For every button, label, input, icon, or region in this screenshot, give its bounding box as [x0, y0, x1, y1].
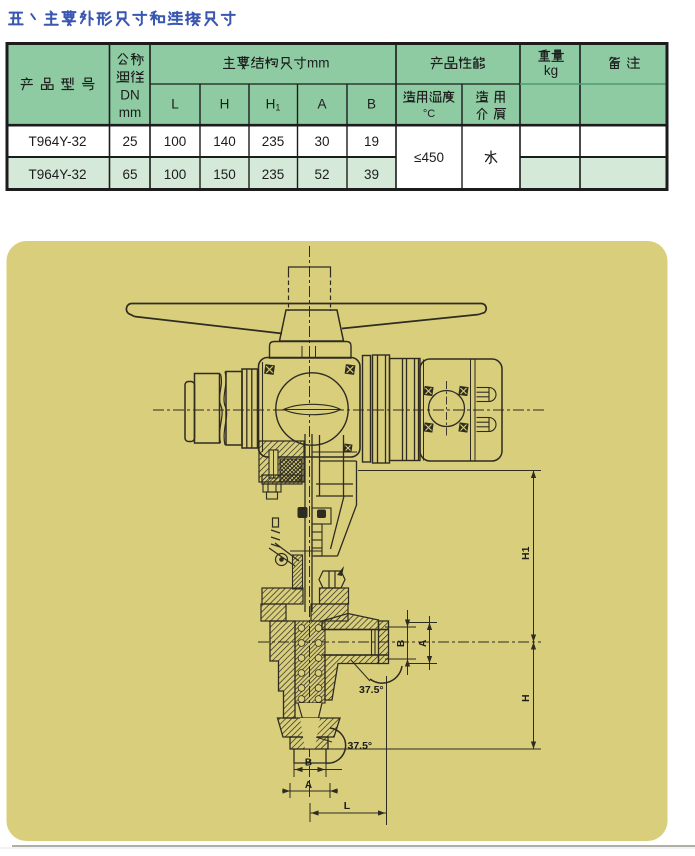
svg-text:DN: DN — [120, 88, 140, 103]
svg-text:A: A — [418, 640, 429, 647]
svg-text:mm: mm — [119, 105, 142, 120]
svg-text:≤450: ≤450 — [414, 150, 444, 165]
svg-text:T964Y-32: T964Y-32 — [28, 167, 86, 182]
svg-text:140: 140 — [213, 134, 236, 149]
svg-text:100: 100 — [164, 134, 187, 149]
svg-text:B: B — [305, 758, 312, 769]
svg-text:235: 235 — [262, 134, 285, 149]
svg-text:°C: °C — [423, 108, 435, 120]
svg-text:H1: H1 — [520, 546, 532, 560]
svg-text:30: 30 — [314, 134, 329, 149]
svg-text:37.5°: 37.5° — [359, 684, 384, 696]
svg-text:100: 100 — [164, 167, 187, 182]
svg-text:L: L — [171, 97, 179, 112]
svg-text:52: 52 — [314, 167, 329, 182]
svg-text:39: 39 — [364, 167, 379, 182]
svg-text:235: 235 — [262, 167, 285, 182]
svg-text:150: 150 — [213, 167, 236, 182]
svg-text:H: H — [220, 97, 230, 112]
svg-text:H: H — [520, 694, 532, 702]
svg-text:mm: mm — [307, 56, 330, 71]
svg-text:B: B — [367, 97, 376, 112]
svg-text:25: 25 — [122, 134, 137, 149]
svg-text:T964Y-32: T964Y-32 — [28, 134, 86, 149]
svg-text:37.5°: 37.5° — [348, 740, 373, 752]
svg-text:kg: kg — [544, 63, 558, 78]
svg-text:A: A — [305, 780, 312, 791]
svg-text:B: B — [396, 640, 407, 647]
svg-text:A: A — [317, 97, 326, 112]
svg-text:19: 19 — [364, 134, 379, 149]
svg-text:65: 65 — [122, 167, 137, 182]
svg-text:L: L — [344, 800, 351, 812]
